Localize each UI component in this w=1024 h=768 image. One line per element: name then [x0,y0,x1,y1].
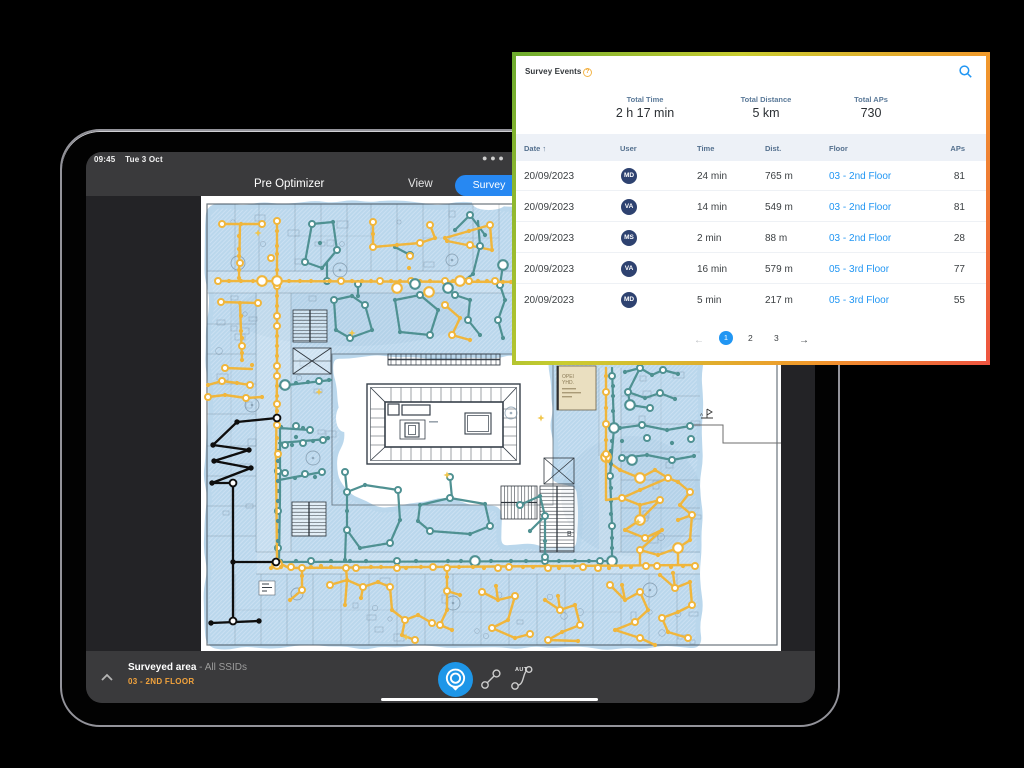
svg-text:B: B [567,531,572,538]
svg-text:A: A [700,412,703,417]
svg-text:YHD.: YHD. [562,380,574,386]
